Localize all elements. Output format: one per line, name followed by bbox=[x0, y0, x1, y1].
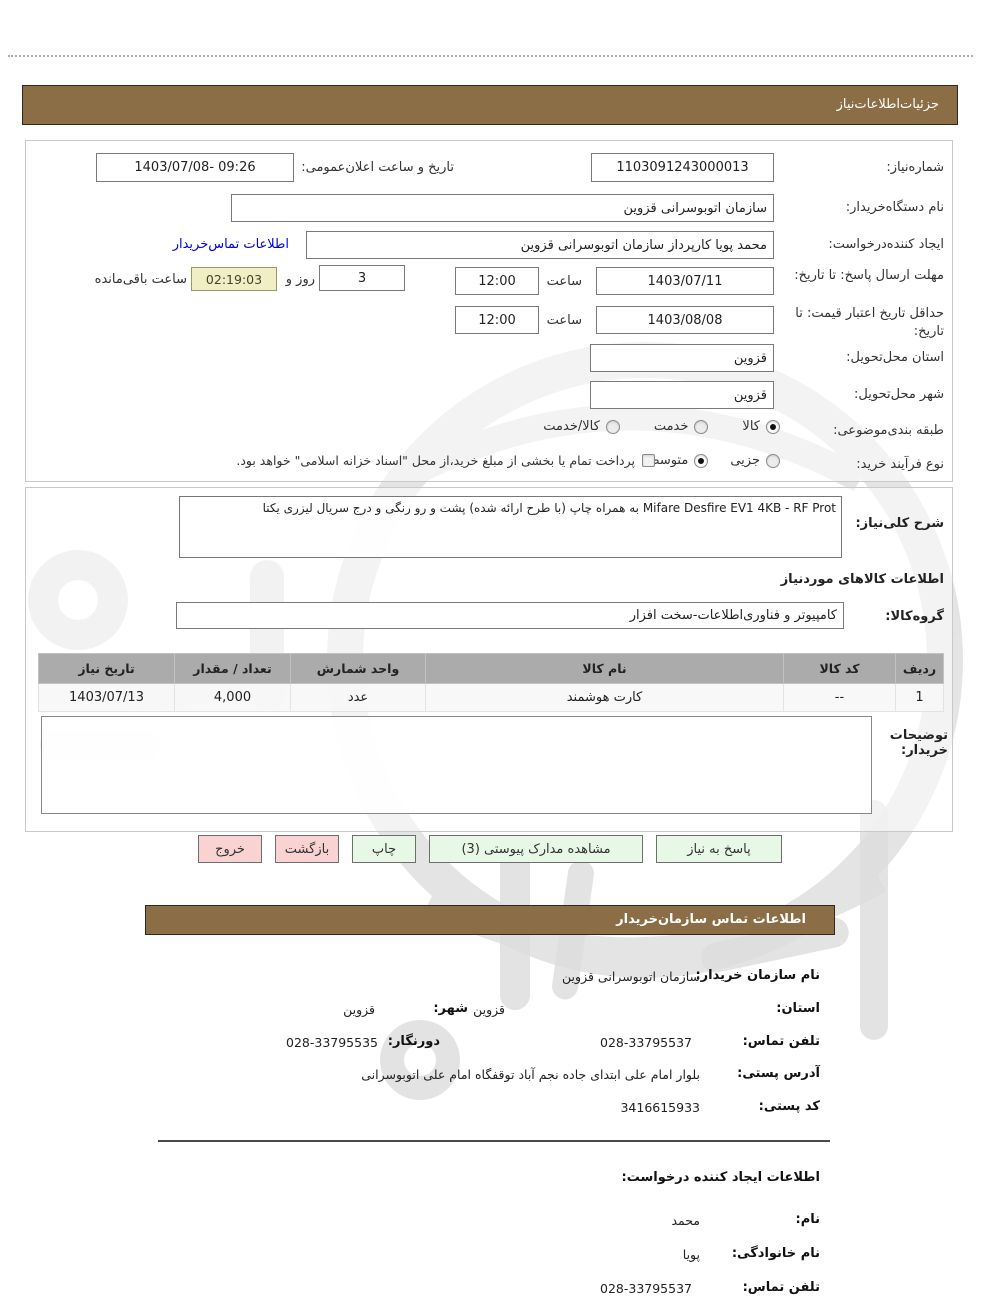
subject-category-options: کالا خدمت کالا/خدمت bbox=[543, 419, 780, 434]
section-header-details: جزئیات‌اطلاعات‌نیاز bbox=[22, 85, 958, 125]
price-validity-date-field[interactable]: 1403/08/08 bbox=[596, 306, 774, 334]
cell-item-code: -- bbox=[784, 684, 896, 712]
col-quantity: تعداد / مقدار bbox=[175, 654, 291, 684]
col-item-code: کد کالا bbox=[784, 654, 896, 684]
announce-datetime-label: تاریخ و ساعت اعلان‌عمومی: bbox=[301, 159, 454, 177]
reply-deadline-time-field[interactable]: 12:00 bbox=[455, 267, 539, 295]
category-option-kala[interactable]: کالا bbox=[742, 419, 780, 434]
subject-category-label: طبقه بندی‌موضوعی: bbox=[833, 422, 944, 440]
cell-row-number: 1 bbox=[896, 684, 944, 712]
details-panel: شماره‌نیاز: 1103091243000013 تاریخ و ساع… bbox=[25, 140, 953, 482]
col-item-name: نام کالا bbox=[426, 654, 784, 684]
delivery-province-label: استان محل‌تحویل: bbox=[846, 349, 944, 367]
delivery-city-label: شهر محل‌تحویل: bbox=[854, 386, 944, 404]
exit-button[interactable]: خروج bbox=[198, 835, 262, 863]
contact-address-value: بلوار امام علی ابتدای جاده نجم آباد توقف… bbox=[361, 1067, 700, 1082]
buyer-notes-textarea[interactable] bbox=[41, 716, 872, 814]
action-buttons: پاسخ به نیاز مشاهده مدارک پیوستی (3) چاپ… bbox=[25, 835, 955, 863]
back-button[interactable]: بازگشت bbox=[275, 835, 339, 863]
creator-lastname-label: نام خانوادگی: bbox=[732, 1246, 820, 1261]
category-option-label: خدمت bbox=[654, 419, 689, 434]
remaining-days-field[interactable]: 3 bbox=[319, 265, 405, 291]
section-header-details-title: جزئیات‌اطلاعات‌نیاز bbox=[837, 97, 939, 112]
contact-phone-value: 028-33795537 bbox=[600, 1035, 692, 1050]
creator-phone-value: 028-33795537 bbox=[600, 1281, 692, 1296]
need-number-label: شماره‌نیاز: bbox=[886, 159, 944, 177]
category-option-label: کالا/خدمت bbox=[543, 419, 600, 434]
reply-to-need-button[interactable]: پاسخ به نیاز bbox=[656, 835, 782, 863]
contact-postal-value: 3416615933 bbox=[620, 1100, 700, 1115]
reply-deadline-date-field[interactable]: 1403/07/11 bbox=[596, 267, 774, 295]
top-divider bbox=[8, 55, 973, 57]
contact-city-value: قزوین bbox=[343, 1002, 375, 1017]
islamic-treasury-checkbox[interactable] bbox=[642, 454, 655, 467]
contact-province-value: قزوین bbox=[473, 1002, 505, 1017]
col-row-number: ردیف bbox=[896, 654, 944, 684]
goods-table-row: 1 -- کارت هوشمند عدد 4,000 1403/07/13 bbox=[39, 684, 944, 712]
contact-org-label: نام سازمان خریدار: bbox=[695, 968, 820, 983]
delivery-province-field[interactable]: قزوین bbox=[590, 344, 774, 372]
countdown-timer: 02:19:03 bbox=[191, 267, 277, 291]
radio-on-icon[interactable] bbox=[694, 454, 708, 468]
purchase-process-label: نوع فرآیند خرید: bbox=[856, 456, 944, 474]
request-creator-label: ایجاد کننده‌درخواست: bbox=[828, 236, 944, 254]
creator-firstname-value: محمد bbox=[671, 1213, 700, 1228]
category-option-khadamat[interactable]: خدمت bbox=[654, 419, 709, 434]
contact-address-label: آدرس پستی: bbox=[737, 1066, 820, 1081]
creator-lastname-value: پویا bbox=[683, 1247, 700, 1262]
col-need-date: تاریخ نیاز bbox=[39, 654, 175, 684]
cell-need-date: 1403/07/13 bbox=[39, 684, 175, 712]
goods-group-label: گروه‌کالا: bbox=[885, 609, 944, 624]
col-unit: واحد شمارش bbox=[291, 654, 426, 684]
need-number-field[interactable]: 1103091243000013 bbox=[591, 153, 774, 182]
price-validity-time-label: ساعت bbox=[547, 312, 582, 330]
price-validity-label: حداقل تاریخ اعتبار قیمت: تا تاریخ: bbox=[779, 305, 944, 340]
category-option-label: کالا bbox=[742, 419, 760, 434]
print-button[interactable]: چاپ bbox=[352, 835, 416, 863]
days-and-label: روز و bbox=[286, 271, 315, 289]
radio-on-icon[interactable] bbox=[766, 420, 780, 434]
section-header-contact: اطلاعات تماس سازمان‌خریدار bbox=[145, 905, 835, 935]
contact-phone-label: تلفن تماس: bbox=[743, 1034, 820, 1049]
contact-postal-label: کد پستی: bbox=[759, 1099, 820, 1114]
cell-item-name: کارت هوشمند bbox=[426, 684, 784, 712]
buyer-org-field[interactable]: سازمان اتوبوسرانی قزوین bbox=[231, 194, 774, 222]
goods-info-heading: اطلاعات کالاهای موردنیاز bbox=[781, 572, 944, 587]
goods-table: ردیف کد کالا نام کالا واحد شمارش تعداد /… bbox=[38, 653, 944, 712]
section-separator-line bbox=[158, 1140, 830, 1142]
cell-quantity: 4,000 bbox=[175, 684, 291, 712]
creator-phone-label: تلفن تماس: bbox=[743, 1280, 820, 1295]
reply-deadline-label: مهلت ارسال پاسخ: تا تاریخ: bbox=[794, 267, 944, 285]
delivery-city-field[interactable]: قزوین bbox=[590, 381, 774, 409]
goods-group-field[interactable]: کامپیوتر و فناوری‌اطلاعات-سخت افزار bbox=[176, 602, 844, 629]
radio-off-icon[interactable] bbox=[766, 454, 780, 468]
radio-off-icon[interactable] bbox=[694, 420, 708, 434]
islamic-treasury-checkbox-label: پرداخت تمام یا بخشی از مبلغ خرید،از محل … bbox=[236, 453, 635, 468]
process-option-jozii[interactable]: جزیی bbox=[730, 453, 780, 468]
section-header-contact-title: اطلاعات تماس سازمان‌خریدار bbox=[616, 912, 806, 927]
goods-panel: Mifare Desfire EV1 4KB - RF Prot به همرا… bbox=[25, 487, 953, 832]
announce-datetime-field[interactable]: 1403/07/08- 09:26 bbox=[96, 153, 294, 182]
process-option-label: جزیی bbox=[730, 453, 760, 468]
buyer-org-label: نام دستگاه‌خریدار: bbox=[846, 199, 944, 217]
contact-fax-value: 028-33795535 bbox=[286, 1035, 378, 1050]
request-creator-field[interactable]: محمد پویا کارپرداز سازمان اتوبوسرانی قزو… bbox=[306, 231, 774, 259]
contact-fax-label: دورنگار: bbox=[388, 1034, 440, 1049]
contact-org-value: سازمان اتوبوسرانی قزوین bbox=[562, 969, 700, 984]
need-description-label: شرح کلی‌نیاز: bbox=[855, 516, 944, 531]
price-validity-time-field[interactable]: 12:00 bbox=[455, 306, 539, 334]
reply-deadline-time-label: ساعت bbox=[547, 273, 582, 291]
buyer-notes-label: توضیحات خریدار: bbox=[870, 728, 948, 758]
process-option-motevasset[interactable]: متوسط bbox=[647, 453, 708, 468]
creator-info-heading: اطلاعات ایجاد کننده درخواست: bbox=[622, 1170, 820, 1185]
hours-remaining-label: ساعت باقی‌مانده bbox=[95, 271, 187, 289]
contact-province-label: استان: bbox=[776, 1001, 820, 1016]
view-attachments-button[interactable]: مشاهده مدارک پیوستی (3) bbox=[429, 835, 643, 863]
cell-unit: عدد bbox=[291, 684, 426, 712]
islamic-treasury-checkbox-row: پرداخت تمام یا بخشی از مبلغ خرید،از محل … bbox=[236, 453, 655, 468]
contact-city-label: شهر: bbox=[433, 1001, 468, 1016]
radio-off-icon[interactable] bbox=[606, 420, 620, 434]
purchase-process-options: جزیی متوسط bbox=[647, 453, 780, 468]
need-description-textarea[interactable]: Mifare Desfire EV1 4KB - RF Prot به همرا… bbox=[179, 496, 842, 558]
category-option-kala-khadamat[interactable]: کالا/خدمت bbox=[543, 419, 620, 434]
buyer-contact-link[interactable]: اطلاعات تماس‌خریدار bbox=[173, 237, 289, 252]
creator-firstname-label: نام: bbox=[796, 1212, 821, 1227]
goods-table-header-row: ردیف کد کالا نام کالا واحد شمارش تعداد /… bbox=[39, 654, 944, 684]
